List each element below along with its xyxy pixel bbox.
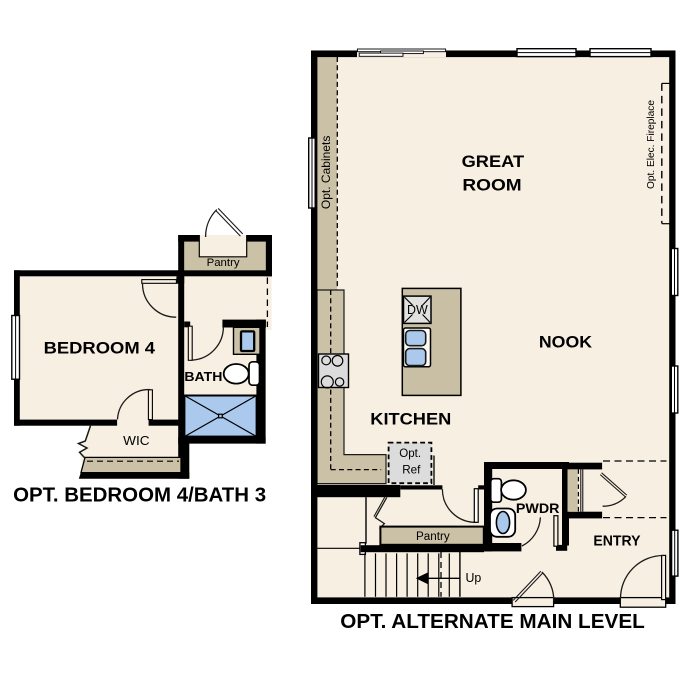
- svg-text:Opt.: Opt.: [399, 446, 421, 460]
- svg-text:ROOM: ROOM: [462, 175, 521, 194]
- svg-text:PWDR: PWDR: [516, 500, 560, 516]
- svg-text:DW: DW: [407, 302, 428, 317]
- svg-text:Up: Up: [466, 570, 482, 585]
- svg-text:KITCHEN: KITCHEN: [370, 409, 451, 428]
- svg-text:GREAT: GREAT: [462, 152, 525, 171]
- svg-text:Pantry: Pantry: [207, 257, 241, 269]
- svg-text:OPT. BEDROOM 4/BATH 3: OPT. BEDROOM 4/BATH 3: [13, 484, 266, 507]
- svg-text:WIC: WIC: [123, 433, 149, 448]
- svg-text:ENTRY: ENTRY: [593, 533, 640, 549]
- svg-text:BATH: BATH: [184, 369, 222, 384]
- svg-text:Opt. Elec. Fireplace: Opt. Elec. Fireplace: [645, 100, 657, 189]
- svg-text:Pantry: Pantry: [416, 531, 450, 543]
- svg-text:Ref: Ref: [402, 462, 421, 476]
- svg-text:Opt. Cabinets: Opt. Cabinets: [319, 136, 333, 210]
- svg-text:NOOK: NOOK: [539, 333, 593, 352]
- svg-text:BEDROOM 4: BEDROOM 4: [44, 339, 156, 358]
- svg-text:OPT. ALTERNATE MAIN LEVEL: OPT. ALTERNATE MAIN LEVEL: [340, 610, 645, 633]
